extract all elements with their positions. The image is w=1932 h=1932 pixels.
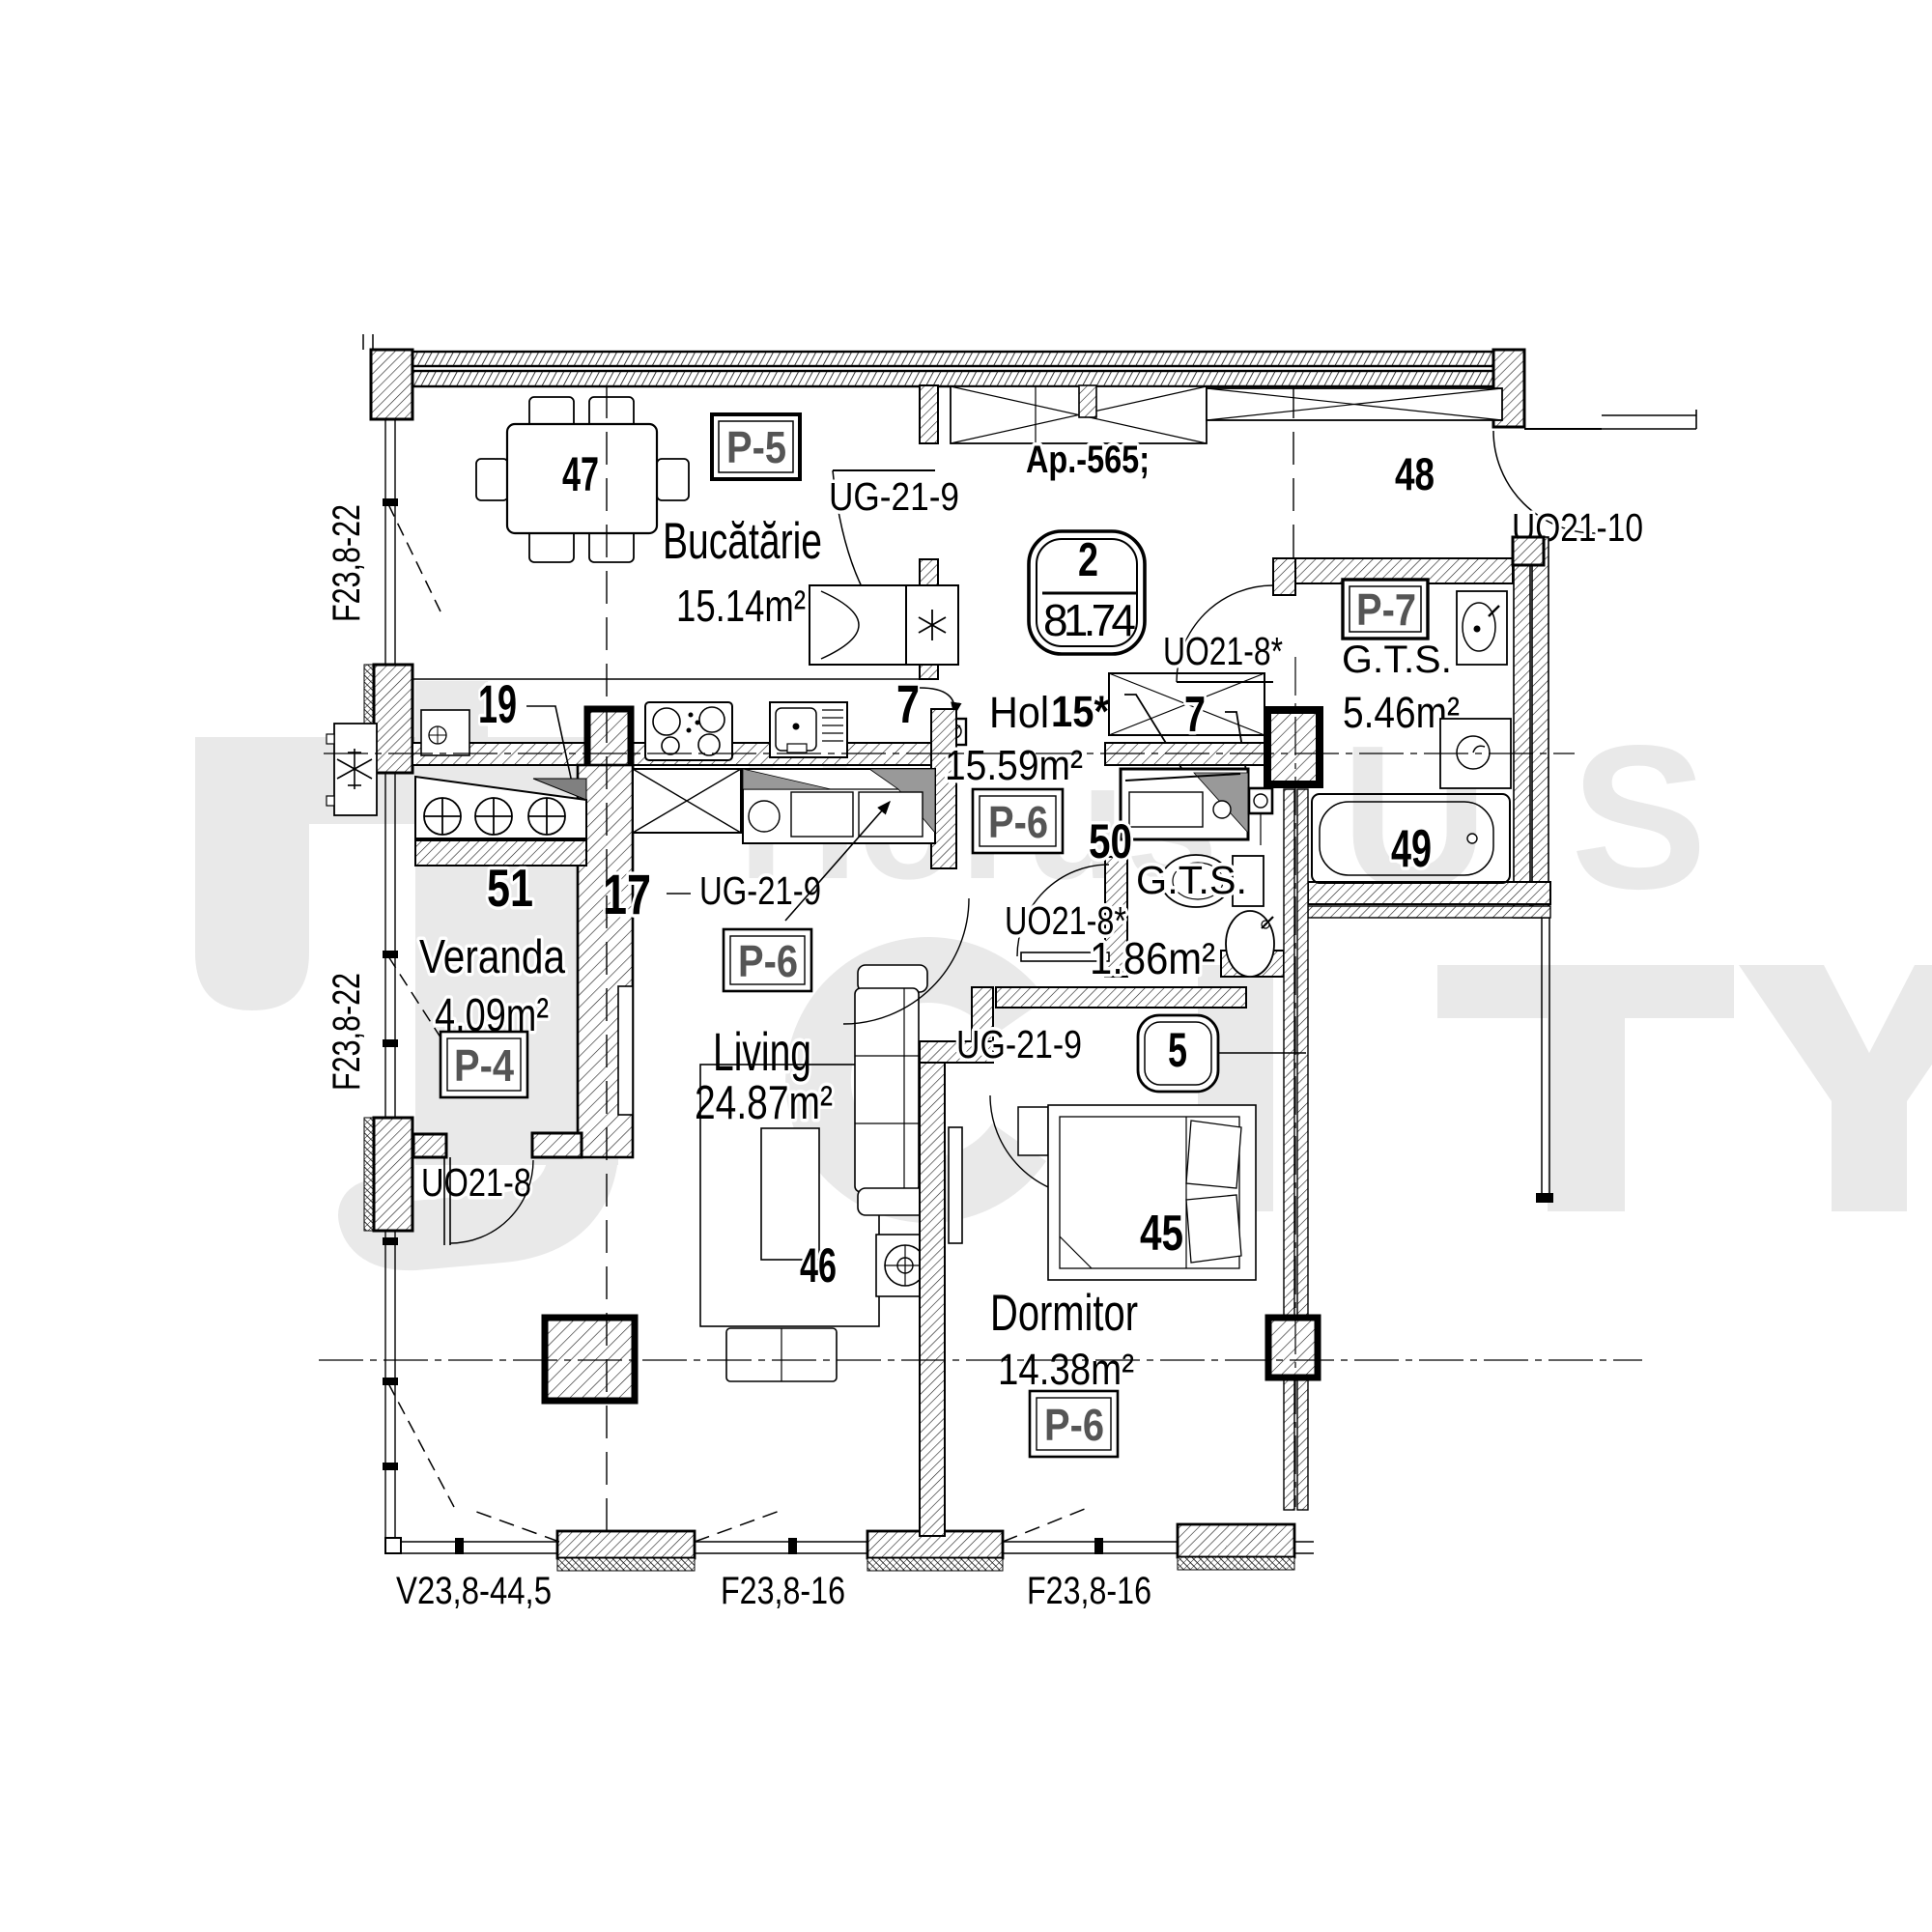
svg-text:S: S — [1571, 702, 1707, 931]
svg-text:46: 46 — [800, 1238, 837, 1293]
svg-text:P-4: P-4 — [454, 1040, 514, 1091]
svg-text:G.T.S.: G.T.S. — [1342, 639, 1452, 681]
svg-text:V23,8-44,5: V23,8-44,5 — [396, 1570, 552, 1612]
svg-text:UG-21-9: UG-21-9 — [699, 868, 821, 913]
svg-text:Bucătărie: Bucătărie — [663, 513, 822, 570]
svg-text:Living: Living — [713, 1021, 811, 1082]
svg-text:UG-21-9: UG-21-9 — [829, 474, 959, 519]
svg-text:51: 51 — [487, 858, 533, 918]
svg-text:45: 45 — [1140, 1206, 1183, 1262]
svg-text:UG-21-9: UG-21-9 — [956, 1022, 1082, 1066]
svg-text:49: 49 — [1391, 818, 1432, 878]
svg-text:48: 48 — [1395, 448, 1435, 499]
svg-text:F23,8-16: F23,8-16 — [721, 1570, 845, 1612]
svg-text:15.14m²: 15.14m² — [676, 581, 806, 631]
svg-text:P-6: P-6 — [988, 797, 1048, 847]
svg-text:15.59m²: 15.59m² — [945, 742, 1083, 789]
svg-text:F23,8-22: F23,8-22 — [326, 973, 368, 1091]
svg-text:Ap.-565;: Ap.-565; — [1026, 439, 1150, 481]
svg-text:5: 5 — [1168, 1023, 1187, 1077]
svg-text:50: 50 — [1089, 814, 1132, 868]
svg-text:P-6: P-6 — [1044, 1400, 1104, 1450]
svg-text:Veranda: Veranda — [419, 931, 566, 983]
svg-text:15*: 15* — [1051, 687, 1109, 736]
svg-text:F23,8-22: F23,8-22 — [326, 504, 368, 622]
svg-text:Dormitor: Dormitor — [990, 1285, 1138, 1342]
svg-text:47: 47 — [562, 447, 599, 501]
svg-text:1.86m²: 1.86m² — [1090, 933, 1215, 983]
svg-text:19: 19 — [478, 673, 517, 734]
svg-text:2: 2 — [1078, 534, 1098, 586]
svg-text:P-6: P-6 — [738, 936, 798, 986]
svg-text:UO21-8*: UO21-8* — [1163, 629, 1283, 673]
svg-text:24.87m²: 24.87m² — [695, 1077, 833, 1129]
svg-text:14.38m²: 14.38m² — [998, 1345, 1134, 1394]
svg-text:UO21-8: UO21-8 — [421, 1160, 531, 1205]
svg-text:81.74: 81.74 — [1043, 595, 1136, 645]
svg-text:P-7: P-7 — [1356, 584, 1416, 635]
svg-text:Hol: Hol — [989, 688, 1049, 737]
svg-text:F23,8-16: F23,8-16 — [1027, 1570, 1151, 1612]
svg-text:G.T.S.: G.T.S. — [1136, 858, 1247, 902]
svg-text:7: 7 — [1184, 687, 1206, 743]
svg-text:7: 7 — [896, 673, 920, 734]
svg-text:P-5: P-5 — [726, 422, 786, 472]
svg-text:17: 17 — [603, 864, 651, 926]
